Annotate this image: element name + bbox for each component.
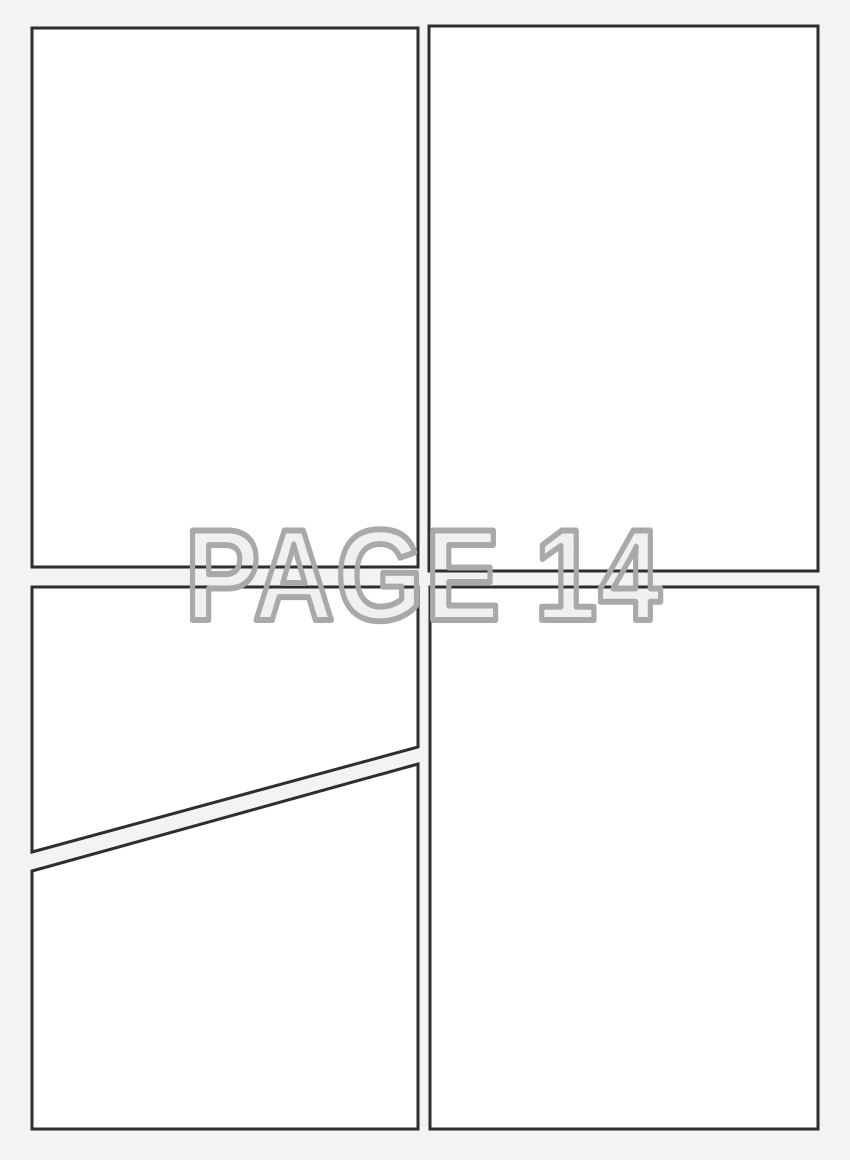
top-right-panel: [429, 26, 818, 571]
top-left-panel: [32, 28, 418, 567]
page-watermark-outline: PAGE 14: [185, 502, 663, 648]
bottom-right-panel: [430, 587, 818, 1129]
comic-page-template: PAGE 14 PAGE 14: [0, 0, 850, 1160]
